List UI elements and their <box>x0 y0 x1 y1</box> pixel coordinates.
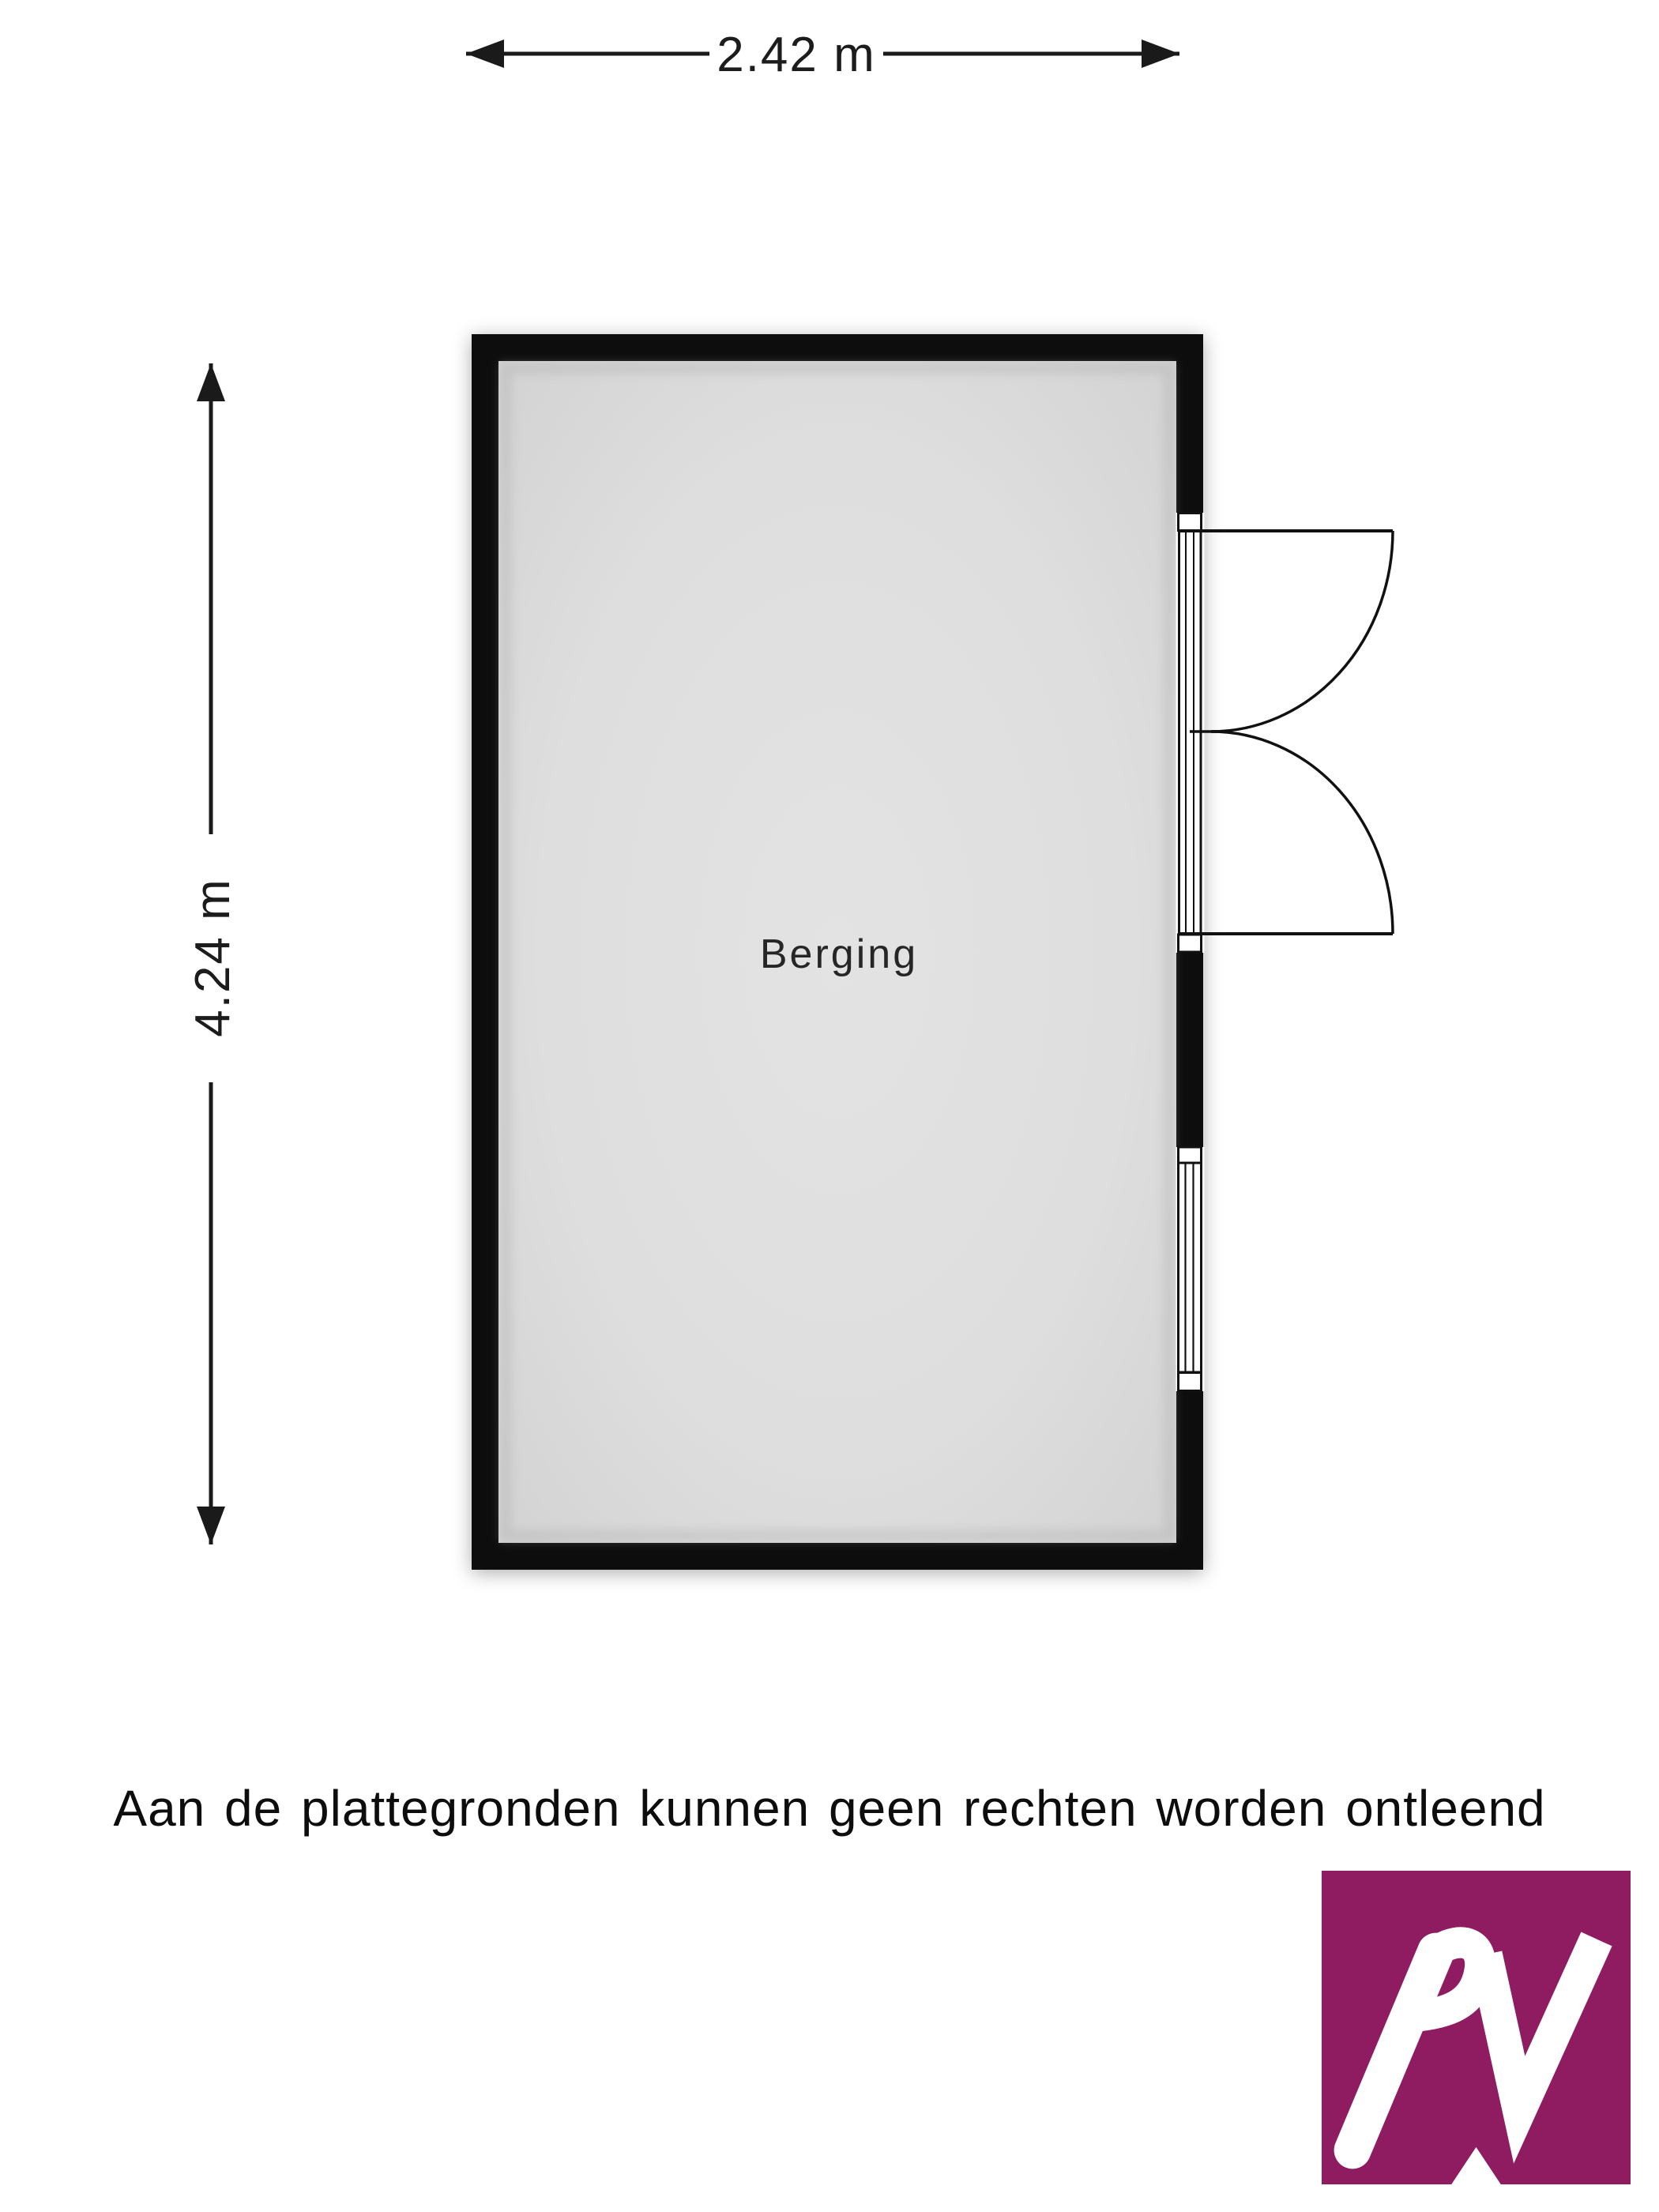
room-berging: Berging <box>472 334 1393 1570</box>
window-opening <box>1176 1147 1205 1391</box>
door-opening <box>1176 513 1394 953</box>
door-frame-bottom-cap <box>1179 935 1202 952</box>
width-dimension-label: 2.42 m <box>717 28 876 82</box>
width-dimension: 2.42 m <box>466 28 1179 82</box>
arrow-down-icon <box>197 1507 225 1544</box>
room-label: Berging <box>760 931 918 977</box>
disclaimer-text: Aan de plattegronden kunnen geen rechten… <box>0 1779 1659 1838</box>
window-frame <box>1179 1163 1202 1372</box>
arrow-right-icon <box>1142 39 1179 68</box>
door-swing-arc-bottom <box>1211 732 1393 934</box>
height-dimension-label: 4.24 m <box>186 878 240 1037</box>
agency-logo <box>1322 1871 1631 2184</box>
floorplan-page: 2.42 m 4.24 m <box>0 0 1659 2212</box>
height-dimension: 4.24 m <box>186 363 240 1544</box>
door-frame-top-cap <box>1179 513 1202 531</box>
window-frame-bottom-cap <box>1179 1373 1202 1391</box>
door-swing-arc-top <box>1211 531 1393 732</box>
logo-av-icon <box>1322 1871 1631 2184</box>
arrow-up-icon <box>197 363 225 401</box>
window-frame-top-cap <box>1179 1147 1202 1163</box>
arrow-left-icon <box>466 39 504 68</box>
